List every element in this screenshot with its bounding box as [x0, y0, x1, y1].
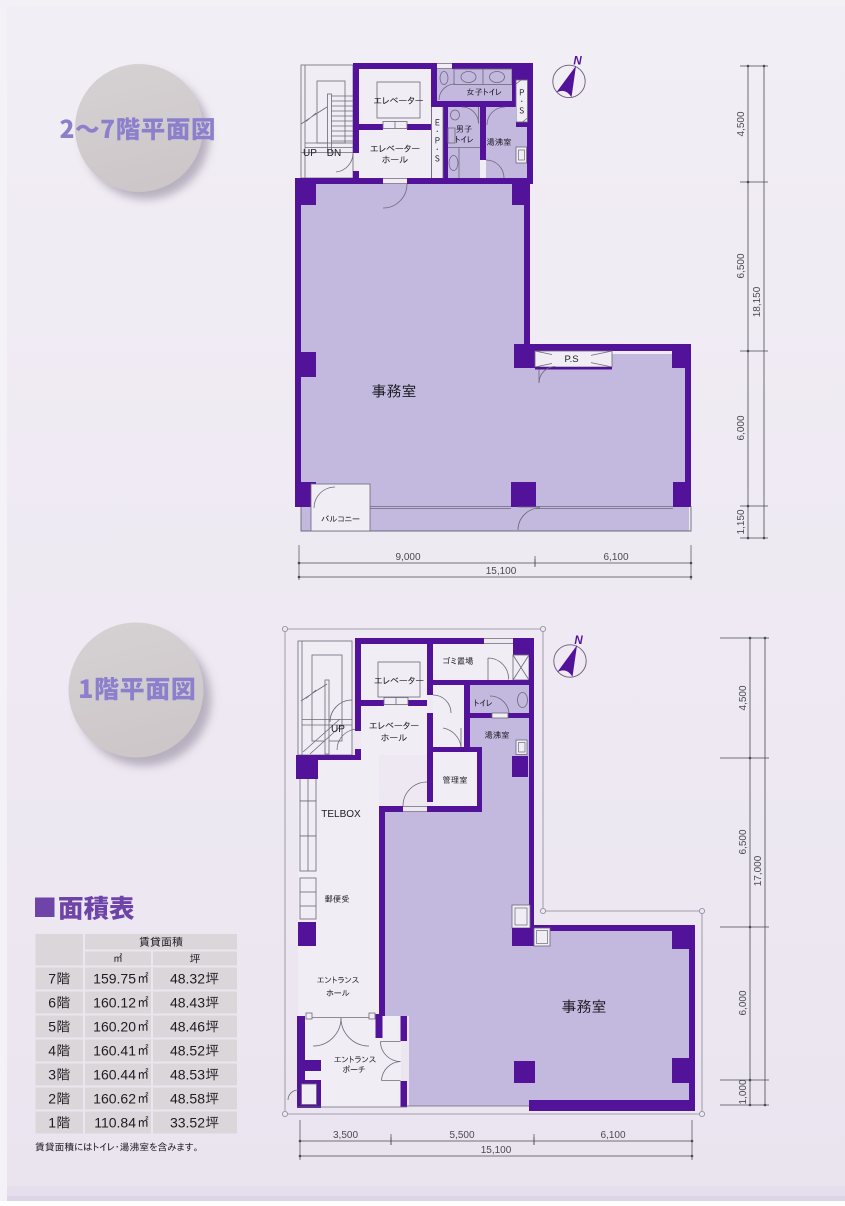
svg-text:P.S: P.S [564, 354, 578, 365]
svg-text:1,000: 1,000 [738, 1079, 749, 1104]
svg-text:48.52: 48.52 [170, 1042, 205, 1058]
svg-text:6,000: 6,000 [736, 415, 747, 440]
svg-text:15,100: 15,100 [486, 566, 517, 577]
svg-text:4: 4 [48, 1042, 56, 1058]
svg-text:160.62: 160.62 [93, 1090, 136, 1106]
svg-text:N: N [573, 56, 582, 68]
svg-text:DN: DN [327, 148, 341, 159]
svg-text:48.46: 48.46 [170, 1018, 205, 1034]
svg-text:15,100: 15,100 [481, 1145, 512, 1156]
svg-text:17,000: 17,000 [753, 855, 764, 886]
svg-text:9,000: 9,000 [395, 552, 420, 563]
svg-text:6,500: 6,500 [738, 829, 749, 854]
svg-text:2: 2 [48, 1090, 56, 1106]
svg-text:6,500: 6,500 [736, 253, 747, 278]
svg-text:6,000: 6,000 [738, 990, 749, 1015]
svg-text:4,500: 4,500 [736, 111, 747, 136]
svg-text:1,150: 1,150 [736, 509, 747, 534]
svg-text:48.32: 48.32 [170, 970, 205, 986]
svg-text:7: 7 [48, 970, 56, 986]
svg-text:18,150: 18,150 [752, 286, 763, 317]
svg-text:6,100: 6,100 [600, 1130, 625, 1141]
svg-text:5,500: 5,500 [449, 1130, 474, 1141]
svg-text:TELBOX: TELBOX [321, 809, 361, 820]
svg-text:6,100: 6,100 [603, 552, 628, 563]
svg-text:48.53: 48.53 [170, 1066, 205, 1082]
svg-text:160.44: 160.44 [93, 1066, 136, 1082]
svg-text:159.75: 159.75 [93, 970, 136, 986]
svg-text:48.43: 48.43 [170, 994, 205, 1010]
svg-text:6: 6 [48, 994, 56, 1010]
svg-text:48.58: 48.58 [170, 1090, 205, 1106]
svg-text:4,500: 4,500 [738, 685, 749, 710]
svg-text:33.52: 33.52 [170, 1114, 205, 1130]
svg-text:3,500: 3,500 [333, 1130, 358, 1141]
svg-text:UP: UP [331, 724, 345, 735]
svg-text:3: 3 [48, 1066, 56, 1082]
svg-text:160.20: 160.20 [93, 1018, 136, 1034]
svg-text:110.84: 110.84 [94, 1114, 136, 1130]
svg-text:UP: UP [303, 148, 317, 159]
svg-text:160.12: 160.12 [93, 994, 136, 1010]
svg-text:5: 5 [48, 1018, 56, 1034]
svg-text:160.41: 160.41 [93, 1042, 136, 1058]
svg-text:N: N [574, 635, 583, 647]
svg-text:1: 1 [48, 1114, 56, 1130]
